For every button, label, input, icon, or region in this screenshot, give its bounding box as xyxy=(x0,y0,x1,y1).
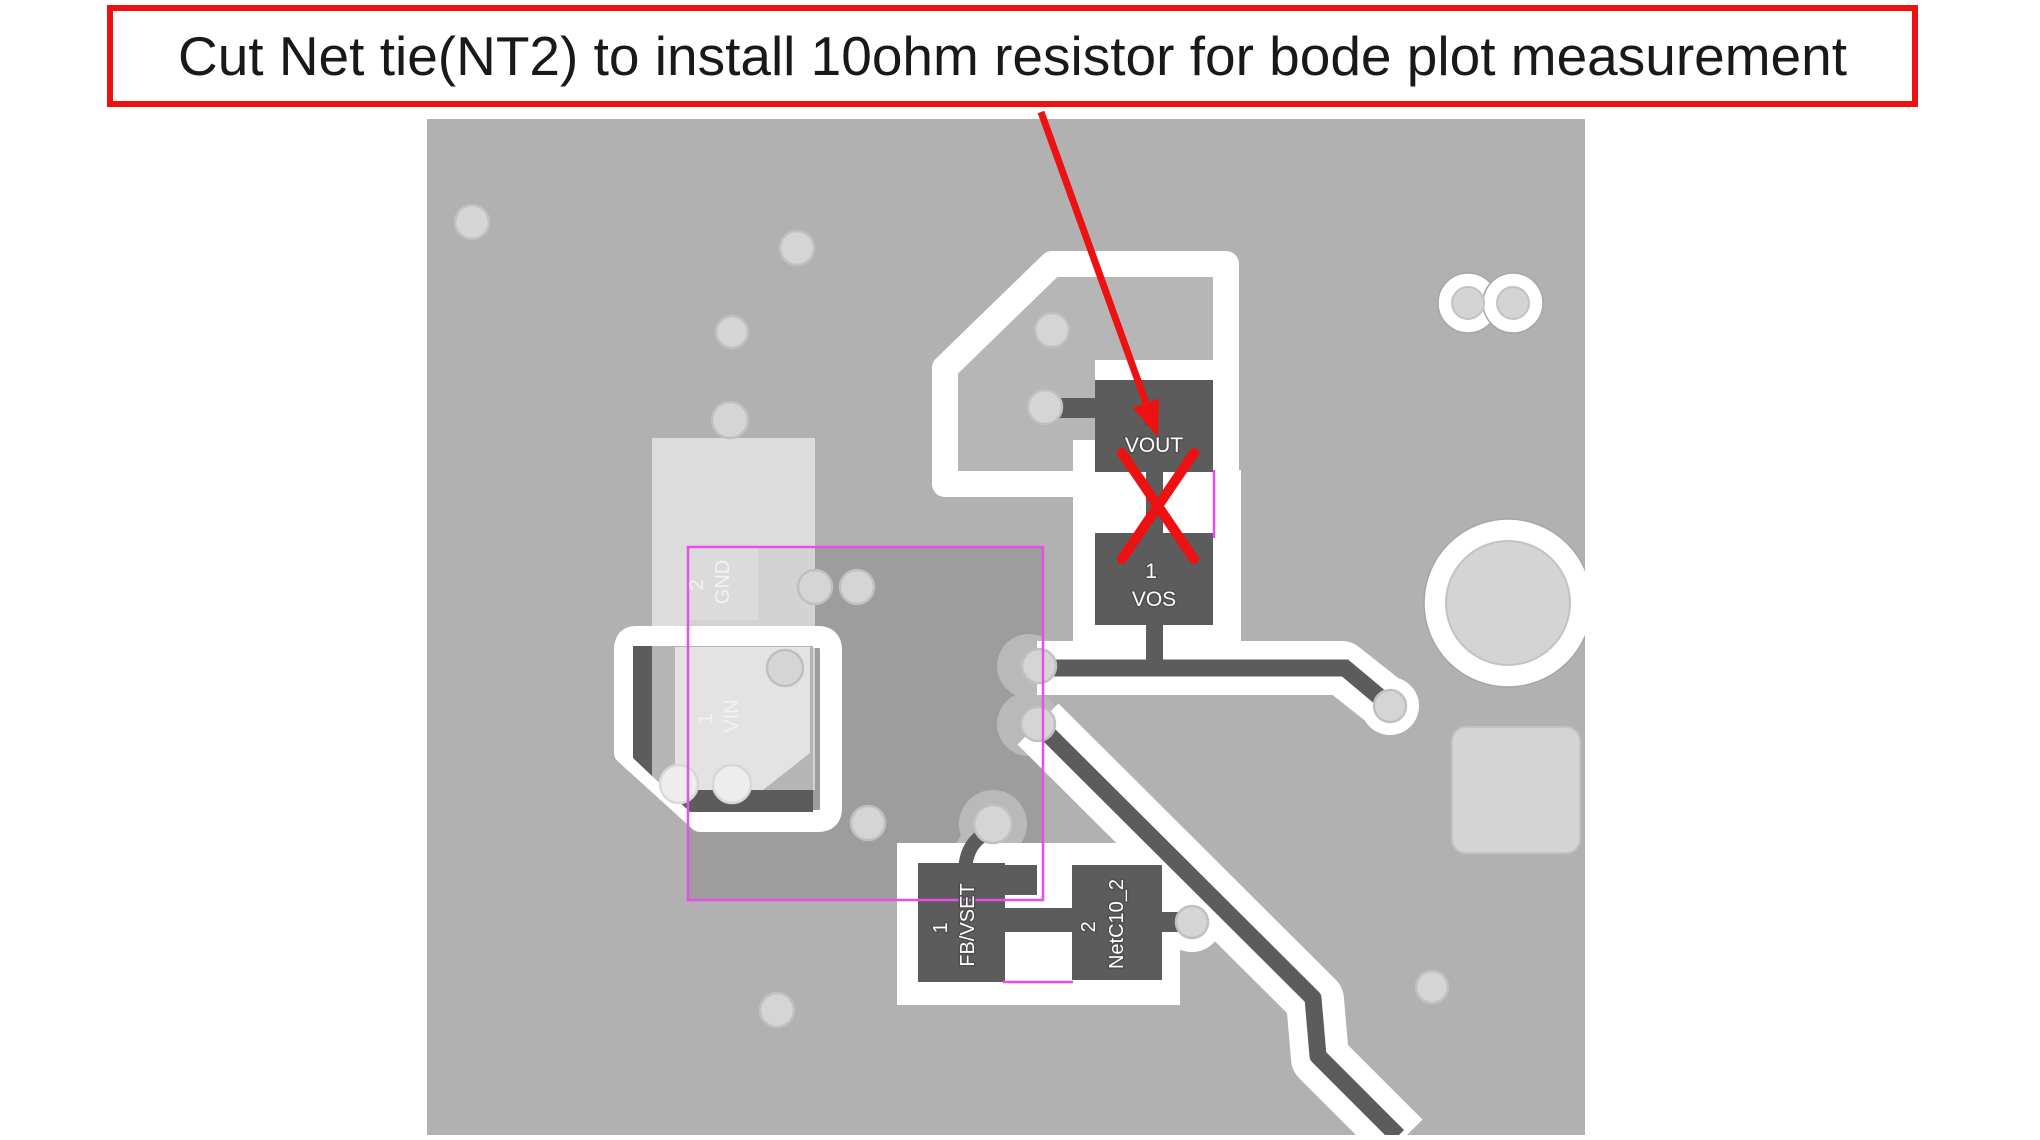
drill-hole xyxy=(1497,287,1529,319)
drill-hole xyxy=(1452,287,1484,319)
via xyxy=(767,650,803,686)
via xyxy=(455,205,489,239)
pcb-layout-image: 2 VOUT 1 VOS 1 FB/VSET 2 NetC10_2 2 GND … xyxy=(0,0,2040,1140)
clearance xyxy=(1213,470,1241,652)
pad-bridge xyxy=(1005,908,1072,932)
via xyxy=(712,402,748,438)
via xyxy=(780,231,814,265)
via xyxy=(851,806,885,840)
pcb-board-group: 2 VOUT 1 VOS 1 FB/VSET 2 NetC10_2 2 GND … xyxy=(427,119,1592,1140)
via xyxy=(1021,707,1055,741)
clearance xyxy=(1095,360,1213,382)
via xyxy=(660,765,698,803)
via xyxy=(1176,906,1208,938)
pad-bridge xyxy=(1005,865,1037,895)
clearance xyxy=(1073,440,1095,654)
via xyxy=(1022,649,1056,683)
via xyxy=(760,993,794,1027)
via xyxy=(716,316,748,348)
via xyxy=(798,570,832,604)
via xyxy=(1035,313,1069,347)
via xyxy=(713,765,751,803)
callout-text: Cut Net tie(NT2) to install 10ohm resist… xyxy=(178,24,1847,88)
via xyxy=(974,805,1012,843)
via xyxy=(840,570,874,604)
mount-hole xyxy=(1446,541,1570,665)
callout-box: Cut Net tie(NT2) to install 10ohm resist… xyxy=(107,5,1918,107)
via xyxy=(1028,390,1062,424)
via xyxy=(1416,971,1448,1003)
screenshot-stage: 2 VOUT 1 VOS 1 FB/VSET 2 NetC10_2 2 GND … xyxy=(0,0,2040,1140)
via xyxy=(1374,690,1406,722)
fiducial-pad xyxy=(1452,727,1580,853)
